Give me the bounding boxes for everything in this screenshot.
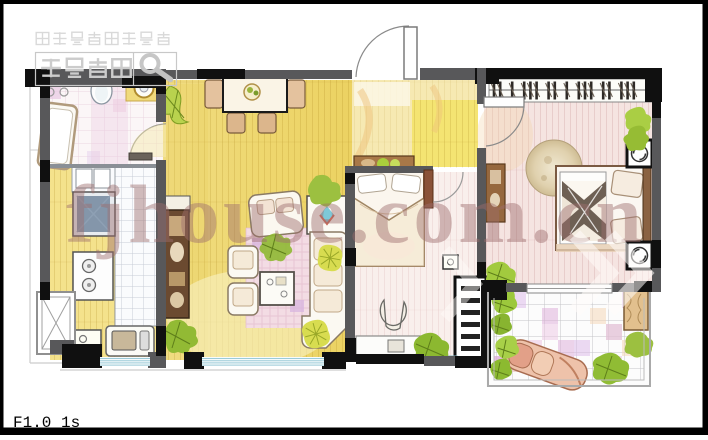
svg-text:F1.0 1s: F1.0 1s: [13, 414, 80, 432]
svg-text:fjhouse.com.cn: fjhouse.com.cn: [66, 168, 645, 260]
